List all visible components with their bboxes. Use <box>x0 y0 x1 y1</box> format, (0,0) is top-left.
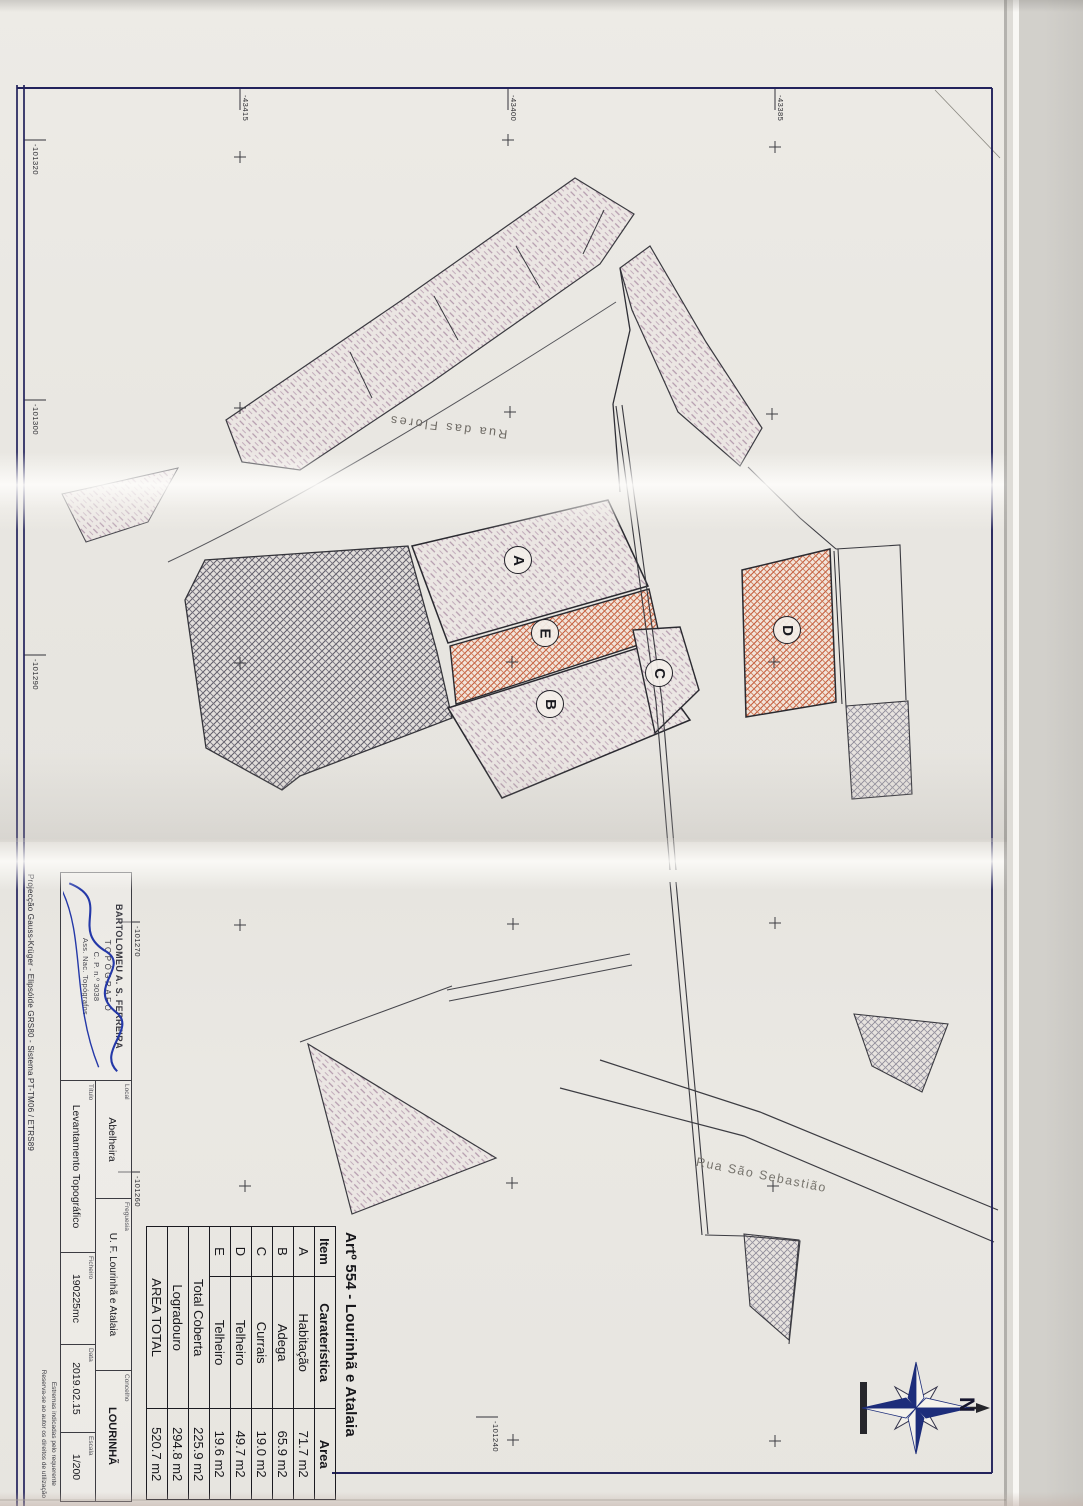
field-titulo: Título Levantamento Topográfico <box>61 1081 96 1253</box>
building-label-d: D <box>773 616 801 644</box>
title-block-fields: Local Abelheira Freguesia U. F. Lourinhã… <box>61 1081 131 1501</box>
signature <box>63 875 129 1079</box>
header-item: Item <box>315 1227 336 1277</box>
total-row: Logradouro 294.8 m2 <box>168 1227 189 1500</box>
article-title: Artº 554 - Lourinhã e Atalaia <box>342 1232 359 1504</box>
field-ficheiro: Ficheiro 190225mc <box>61 1253 96 1345</box>
compass-rose: N <box>860 1362 990 1454</box>
building-label-c: C <box>645 659 673 687</box>
scanned-survey-plan: N Rua das Flores Rua São Sebastião A E B… <box>0 0 1083 1506</box>
block-below-d <box>846 701 912 799</box>
title-block-notes: Estremas indicadas pelo requerente Reser… <box>38 1370 58 1498</box>
subject-buildings <box>412 500 846 798</box>
parcel-bottom-right-1 <box>854 1014 948 1092</box>
table-row: D Telheiro 49.7 m2 <box>231 1227 252 1500</box>
building-label-b: B <box>536 690 564 718</box>
coord-label-left-1: -101320 <box>31 144 40 175</box>
field-concelho: Concelho LOURINHÃ <box>97 1371 132 1501</box>
coord-label-top-1: -43415 <box>241 95 250 121</box>
surveyor-stamp: BARTOLOMEU A. S. FERREIRA TOPÓGRAFO C. P… <box>61 873 131 1081</box>
building-label-a: A <box>504 546 532 574</box>
title-block-wrapper: BARTOLOMEU A. S. FERREIRA TOPÓGRAFO C. P… <box>22 872 132 1502</box>
areas-table: Item Caraterística Area A Habitação 71.7… <box>146 1226 336 1500</box>
field-freguesia: Freguesia U. F. Lourinhã e Atalaia <box>97 1199 132 1371</box>
coord-label-top-3: -43385 <box>776 95 785 121</box>
header-caracteristica: Caraterística <box>315 1276 336 1408</box>
neighbour-parcel-west <box>185 546 452 790</box>
total-row: AREA TOTAL 520.7 m2 <box>147 1227 168 1500</box>
total-row: Total Coberta 225.9 m2 <box>189 1227 210 1500</box>
coord-label-left-3: -101290 <box>31 659 40 690</box>
header-area: Area <box>315 1409 336 1500</box>
coord-label-left-2: -101300 <box>31 404 40 435</box>
parcel-bottom-left <box>308 1044 496 1214</box>
areas-table-wrapper: Item Caraterística Area A Habitação 71.7… <box>146 1226 336 1500</box>
coord-label-top-2: -43400 <box>509 95 518 121</box>
coord-label-left-5: -101260 <box>133 1176 142 1207</box>
north-letter: N <box>955 1397 978 1412</box>
coord-label-left-4: -101270 <box>133 926 142 957</box>
building-label-e: E <box>531 619 559 647</box>
field-escala: Escala 1/200 <box>61 1433 96 1501</box>
table-row: B Adega 65.9 m2 <box>273 1227 294 1500</box>
areas-table-header-row: Item Caraterística Area <box>315 1227 336 1500</box>
coord-label-inner: -101240 <box>491 1421 500 1452</box>
field-data: Data 2019.02.15 <box>61 1345 96 1433</box>
title-block: BARTOLOMEU A. S. FERREIRA TOPÓGRAFO C. P… <box>22 872 132 1502</box>
field-local: Local Abelheira <box>97 1081 132 1199</box>
table-row: C Currais 19.0 m2 <box>252 1227 273 1500</box>
table-row: A Habitação 71.7 m2 <box>294 1227 315 1500</box>
projection-note: Projecção Gauss-Krüger - Elipsóide GRS80… <box>26 874 35 1151</box>
table-row: E Telheiro 19.6 m2 <box>210 1227 231 1500</box>
small-parcel-far-west <box>62 468 178 542</box>
